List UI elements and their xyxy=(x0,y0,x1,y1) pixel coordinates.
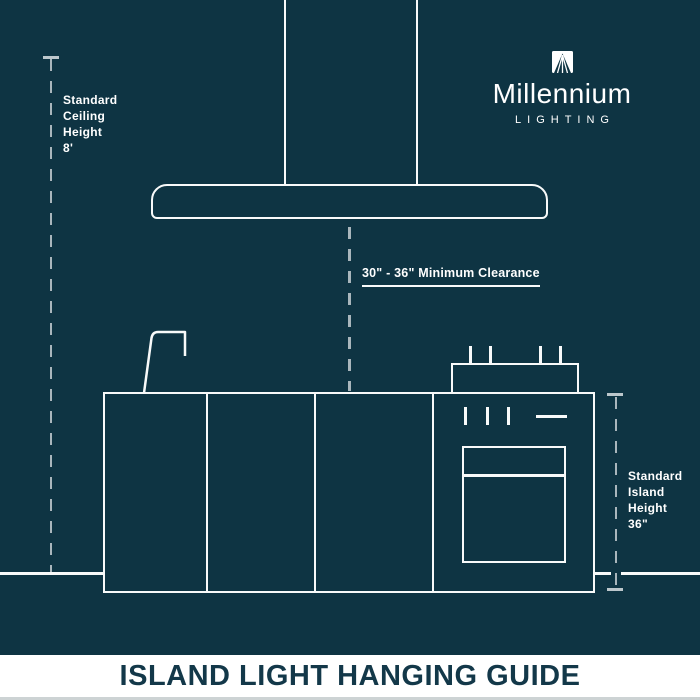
ceiling-dimension-line xyxy=(50,59,53,573)
cabinet-divider xyxy=(432,392,435,593)
ceiling-height-label: Standard Ceiling Height 8' xyxy=(63,92,117,156)
floor-line-left xyxy=(0,572,104,575)
island-height-label: Standard Island Height 36" xyxy=(628,468,682,532)
floor-line-right-b xyxy=(621,572,700,575)
oven-door xyxy=(462,446,566,563)
pendant-rod-left xyxy=(284,0,287,187)
cabinet-divider xyxy=(314,392,317,593)
clearance-label: 30" - 36" Minimum Clearance xyxy=(362,266,540,287)
island-dimension-line xyxy=(615,397,618,587)
oven-handle xyxy=(536,415,567,418)
floor-line-right-a xyxy=(594,572,611,575)
millennium-logo-icon xyxy=(552,51,573,73)
stove-back-panel xyxy=(451,363,579,394)
burner-tick xyxy=(539,346,542,364)
footer-bar: ISLAND LIGHT HANGING GUIDE xyxy=(0,655,700,700)
footer-title: ISLAND LIGHT HANGING GUIDE xyxy=(120,660,581,693)
oven-window-line xyxy=(462,474,566,477)
stove-control-knob xyxy=(464,407,467,425)
cabinet-divider xyxy=(206,392,209,593)
burner-tick xyxy=(559,346,562,364)
island-dimension-top-cap xyxy=(607,393,623,396)
pendant-rod-right xyxy=(416,0,419,187)
burner-tick xyxy=(489,346,492,364)
faucet-icon xyxy=(138,324,193,396)
pendant-shade xyxy=(151,184,548,219)
brand-logo: Millennium LIGHTING xyxy=(461,51,663,126)
brand-tagline: LIGHTING xyxy=(509,114,615,126)
stove-control-knob xyxy=(486,407,489,425)
island-light-hanging-guide: Millennium LIGHTING Standard Ceiling Hei… xyxy=(0,0,700,700)
stove-control-knob xyxy=(507,407,510,425)
brand-name: Millennium xyxy=(493,78,632,110)
burner-tick xyxy=(469,346,472,364)
island-dimension-bottom-cap xyxy=(607,588,623,591)
clearance-dimension-line xyxy=(348,227,351,391)
